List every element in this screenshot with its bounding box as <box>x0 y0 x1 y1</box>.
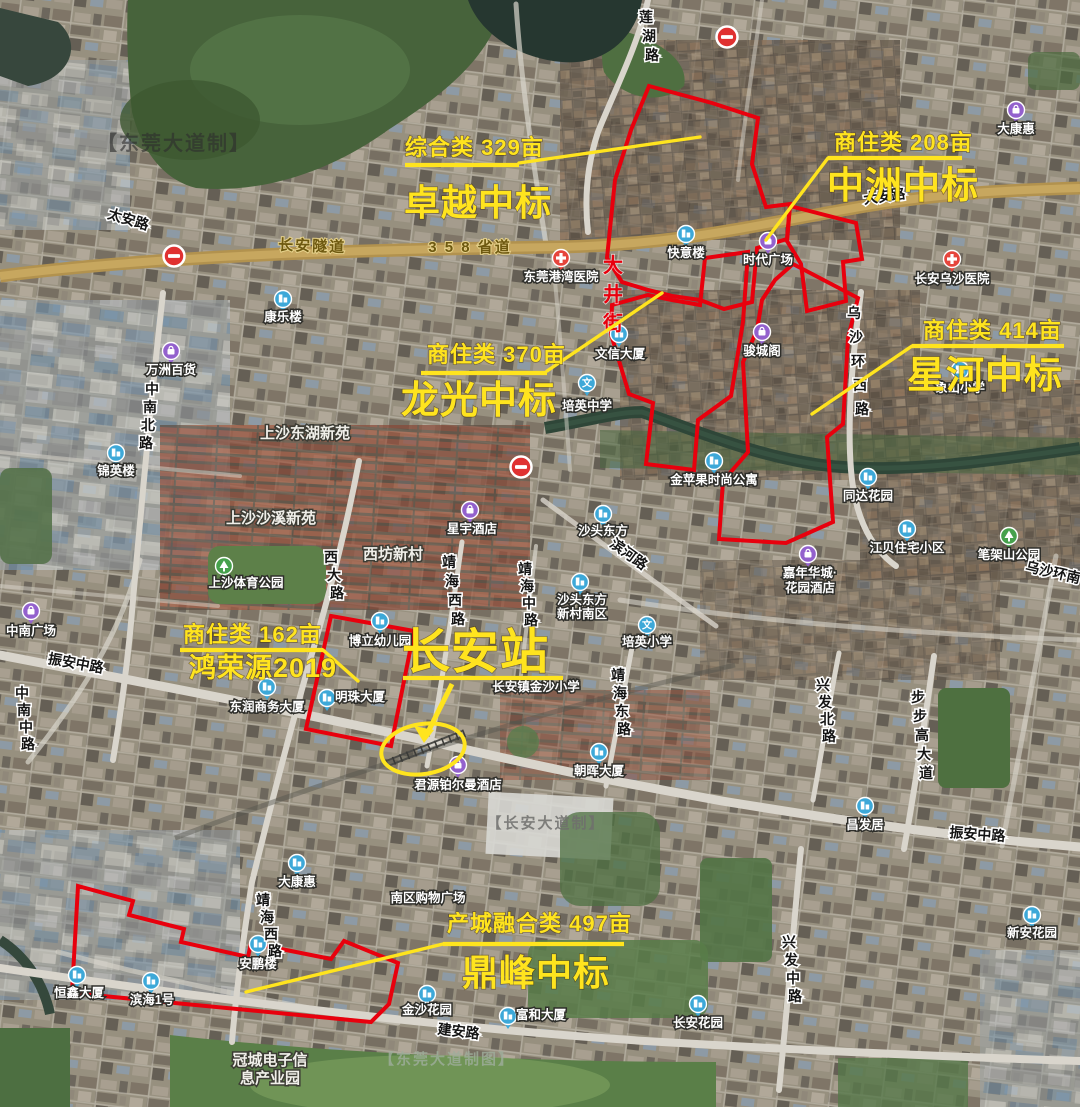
svg-text:路: 路 <box>617 721 632 737</box>
svg-text:靖: 靖 <box>518 561 532 577</box>
svg-text:滨海1号: 滨海1号 <box>130 992 174 1007</box>
svg-text:西坊新村: 西坊新村 <box>363 545 423 563</box>
svg-text:大康惠: 大康惠 <box>278 874 316 889</box>
svg-text:中南广场: 中南广场 <box>6 623 56 638</box>
svg-text:南区购物广场: 南区购物广场 <box>390 890 465 905</box>
svg-text:锦英楼: 锦英楼 <box>97 463 135 478</box>
svg-text:中: 中 <box>786 970 800 986</box>
svg-text:中: 中 <box>522 595 536 611</box>
svg-text:长安隧道: 长安隧道 <box>278 236 347 256</box>
annotation-category: 产城融合类 497亩 <box>447 911 632 936</box>
svg-text:长安花园: 长安花园 <box>673 1015 723 1030</box>
place-label: 上沙沙溪新苑 <box>226 509 316 527</box>
svg-text:中: 中 <box>15 685 29 701</box>
svg-text:恒鑫大厦: 恒鑫大厦 <box>54 985 105 1000</box>
svg-text:发: 发 <box>783 952 799 968</box>
svg-text:快意楼: 快意楼 <box>667 245 705 260</box>
svg-text:莲: 莲 <box>639 9 653 25</box>
svg-text:君源铂尔曼酒店: 君源铂尔曼酒店 <box>413 777 502 792</box>
svg-text:步: 步 <box>911 689 925 705</box>
svg-text:万洲百货: 万洲百货 <box>145 362 197 377</box>
svg-text:冠城电子信: 冠城电子信 <box>232 1051 307 1069</box>
svg-text:东润商务大厦: 东润商务大厦 <box>229 699 305 714</box>
map-watermark: 【东莞大道制】 <box>97 131 251 155</box>
svg-text:路: 路 <box>645 47 660 63</box>
svg-text:同达花园: 同达花园 <box>843 488 893 503</box>
annotation-category: 商住类 162亩 <box>183 622 322 647</box>
place-label: 长安镇金沙小学 <box>492 679 580 694</box>
svg-text:富和大厦: 富和大厦 <box>516 1007 567 1022</box>
annotation-winner: 卓越中标 <box>404 182 552 223</box>
map-watermark: 【东莞大道制图】 <box>379 1050 515 1068</box>
svg-text:大康惠: 大康惠 <box>997 121 1035 136</box>
svg-text:沙: 沙 <box>849 329 863 345</box>
svg-text:湖: 湖 <box>642 28 656 44</box>
svg-text:靖: 靖 <box>442 554 456 570</box>
svg-text:大: 大 <box>917 746 931 762</box>
svg-text:新村南区: 新村南区 <box>557 606 608 621</box>
svg-text:南: 南 <box>143 399 157 415</box>
place-label: 西坊新村 <box>363 545 423 563</box>
svg-text:路: 路 <box>855 401 870 417</box>
svg-text:路: 路 <box>139 435 154 451</box>
place-label: 上沙东湖新苑 <box>260 424 350 442</box>
annotation-category: 商住类 414亩 <box>923 318 1062 343</box>
satellite-map: 康乐楼东莞港湾医院万洲百货锦英楼上沙东湖新苑上沙沙溪新苑西坊新村上沙体育公园星宇… <box>0 0 1080 1107</box>
svg-text:沙头东方: 沙头东方 <box>557 592 607 607</box>
svg-text:步: 步 <box>913 708 927 724</box>
svg-text:中: 中 <box>145 381 159 397</box>
svg-text:文: 文 <box>582 377 593 390</box>
svg-text:海: 海 <box>613 685 627 701</box>
road-label: 长安隧道 <box>278 236 347 256</box>
svg-text:海: 海 <box>260 909 274 925</box>
svg-text:东: 东 <box>615 703 629 719</box>
svg-text:东莞港湾医院: 东莞港湾医院 <box>523 269 599 284</box>
annotation-winner: 鸿荣源2019 <box>189 653 337 683</box>
svg-text:长安镇金沙小学: 长安镇金沙小学 <box>492 679 580 694</box>
svg-text:3 5 8 省道: 3 5 8 省道 <box>428 238 512 256</box>
svg-text:靖: 靖 <box>256 892 270 908</box>
svg-text:北: 北 <box>820 711 834 727</box>
svg-text:大: 大 <box>327 567 341 583</box>
svg-text:江贝住宅小区: 江贝住宅小区 <box>869 540 945 555</box>
no-entry-icon <box>511 457 532 478</box>
annotation-winner: 中洲中标 <box>827 165 979 206</box>
annotation-category: 综合类 329亩 <box>405 135 544 160</box>
svg-text:中: 中 <box>19 719 33 735</box>
svg-text:康乐楼: 康乐楼 <box>264 309 302 324</box>
svg-text:新安花园: 新安花园 <box>1007 925 1057 940</box>
svg-text:兴: 兴 <box>816 677 830 693</box>
svg-text:上沙东湖新苑: 上沙东湖新苑 <box>260 424 350 442</box>
svg-text:长安乌沙医院: 长安乌沙医院 <box>914 271 990 286</box>
svg-text:骏城阁: 骏城阁 <box>743 343 781 358</box>
svg-text:兴: 兴 <box>782 934 796 950</box>
svg-text:文: 文 <box>642 619 653 632</box>
annotation-category: 商住类 370亩 <box>427 342 566 367</box>
svg-text:路: 路 <box>268 943 283 959</box>
svg-text:乌: 乌 <box>847 305 861 321</box>
svg-text:昌发居: 昌发居 <box>846 817 884 832</box>
svg-text:西: 西 <box>264 926 278 942</box>
road-label: 3 5 8 省道 <box>428 238 512 256</box>
svg-text:靖: 靖 <box>611 667 625 683</box>
svg-text:金苹果时尚公寓: 金苹果时尚公寓 <box>669 472 758 487</box>
svg-text:时代广场: 时代广场 <box>743 252 793 267</box>
svg-text:路: 路 <box>822 728 837 744</box>
svg-text:北: 北 <box>141 417 155 433</box>
svg-text:路: 路 <box>330 585 345 601</box>
map-canvas: 康乐楼东莞港湾医院万洲百货锦英楼上沙东湖新苑上沙沙溪新苑西坊新村上沙体育公园星宇… <box>0 0 1080 1107</box>
annotation-winner: 星河中标 <box>907 355 1063 397</box>
svg-text:西: 西 <box>324 549 338 565</box>
svg-text:上沙体育公园: 上沙体育公园 <box>208 575 283 590</box>
svg-text:金沙花园: 金沙花园 <box>401 1002 452 1017</box>
map-watermark: 【长安大道制】 <box>486 814 605 832</box>
svg-text:嘉年华城·: 嘉年华城· <box>782 565 837 580</box>
no-entry-icon <box>164 246 185 267</box>
svg-text:海: 海 <box>445 573 459 589</box>
svg-text:文信大厦: 文信大厦 <box>595 346 646 361</box>
svg-text:海: 海 <box>520 578 534 594</box>
svg-text:沙头东方: 沙头东方 <box>578 523 628 538</box>
svg-text:南: 南 <box>17 702 31 718</box>
svg-text:明珠大厦: 明珠大厦 <box>335 689 386 704</box>
svg-text:大: 大 <box>603 254 623 277</box>
svg-text:上沙沙溪新苑: 上沙沙溪新苑 <box>226 509 316 527</box>
svg-text:星宇酒店: 星宇酒店 <box>447 521 498 536</box>
svg-text:高: 高 <box>915 727 929 743</box>
svg-text:花园酒店: 花园酒店 <box>785 580 836 595</box>
svg-text:路: 路 <box>788 988 803 1004</box>
svg-text:道: 道 <box>919 765 933 781</box>
annotation-winner: 龙光中标 <box>401 380 557 422</box>
svg-text:发: 发 <box>817 694 833 710</box>
annotation-category: 商住类 208亩 <box>834 130 973 155</box>
svg-text:路: 路 <box>451 611 466 627</box>
annotation-winner: 鼎峰中标 <box>462 952 610 993</box>
svg-text:井: 井 <box>603 283 623 306</box>
svg-text:培英小学: 培英小学 <box>622 634 673 649</box>
svg-text:息产业园: 息产业园 <box>240 1069 300 1087</box>
svg-text:路: 路 <box>21 736 36 752</box>
svg-text:环: 环 <box>851 353 865 369</box>
no-entry-icon <box>717 27 738 48</box>
svg-text:西: 西 <box>448 592 462 608</box>
svg-text:朝晖大厦: 朝晖大厦 <box>574 763 625 778</box>
svg-text:培英中学: 培英中学 <box>562 398 613 413</box>
place-label: 南区购物广场 <box>390 890 465 905</box>
station-title: 长安站 <box>402 626 549 679</box>
